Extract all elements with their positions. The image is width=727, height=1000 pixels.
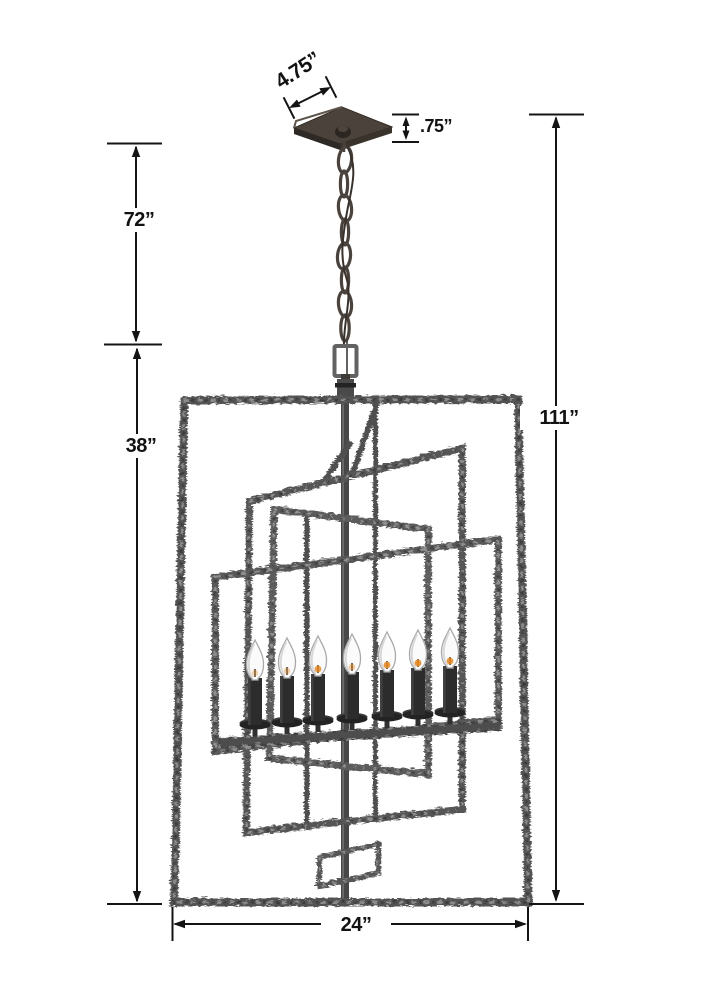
dimension-diagram: 4.75” .75” 72” 38” 111” 24” [0,0,727,1000]
dimension-label-canopy-drop: .75” [420,117,452,135]
hanging-chain [336,138,353,347]
hanging-loop [335,340,357,398]
dimension-label-chain-length: 72” [104,208,174,232]
dimension-chain-length [104,144,162,345]
cage-frames [214,396,500,885]
dimension-label-overall-height: 111” [520,406,598,430]
dimension-overall-height [529,115,584,905]
dimension-cage-height [107,348,162,905]
dimension-label-cage-height: 38” [106,434,176,458]
dimension-label-cage-width: 24” [321,913,391,937]
dimension-canopy-drop [392,115,419,143]
chandelier-illustration [0,0,727,1000]
candle [272,638,303,734]
